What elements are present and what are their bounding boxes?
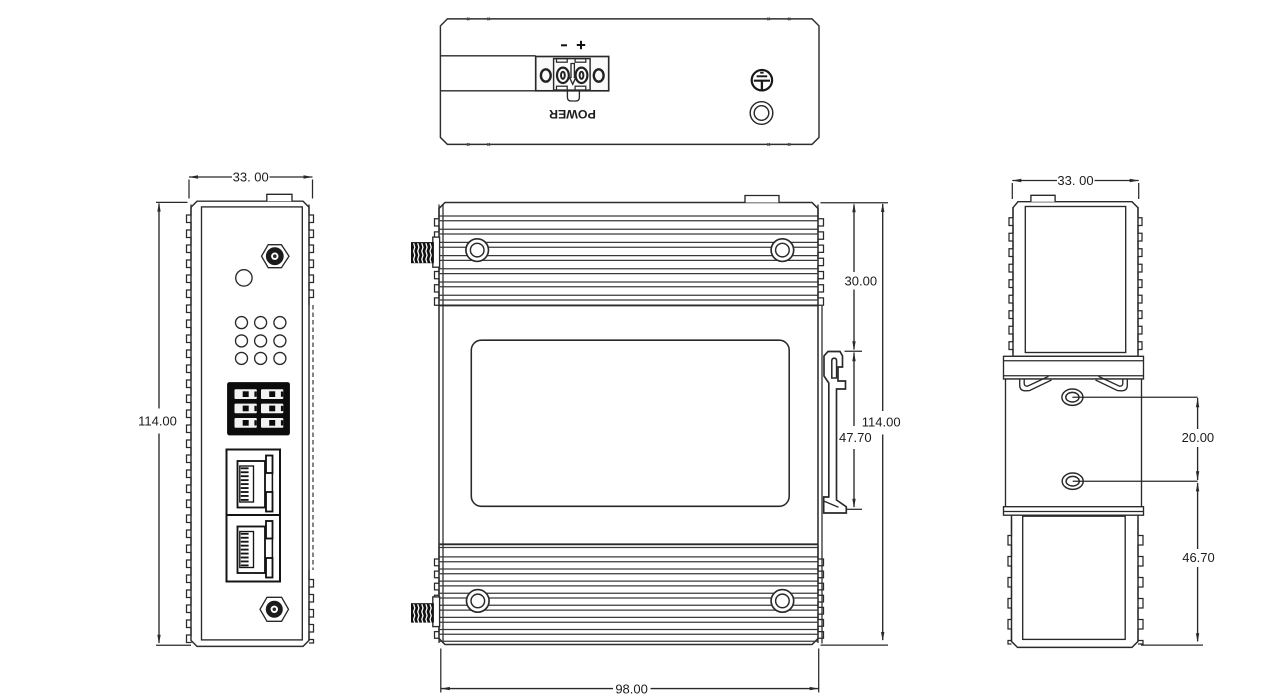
svg-text:33. 00: 33. 00 — [1057, 173, 1093, 188]
svg-text:114.00: 114.00 — [862, 414, 901, 429]
svg-text:47.70: 47.70 — [839, 430, 872, 445]
svg-text:33. 00: 33. 00 — [233, 170, 269, 185]
svg-text:114.00: 114.00 — [138, 414, 177, 429]
svg-text:POWER: POWER — [549, 107, 596, 121]
svg-text:46.70: 46.70 — [1182, 550, 1215, 565]
svg-text:30.00: 30.00 — [845, 274, 878, 289]
svg-text:98.00: 98.00 — [615, 681, 648, 696]
svg-text:20.00: 20.00 — [1182, 430, 1215, 445]
